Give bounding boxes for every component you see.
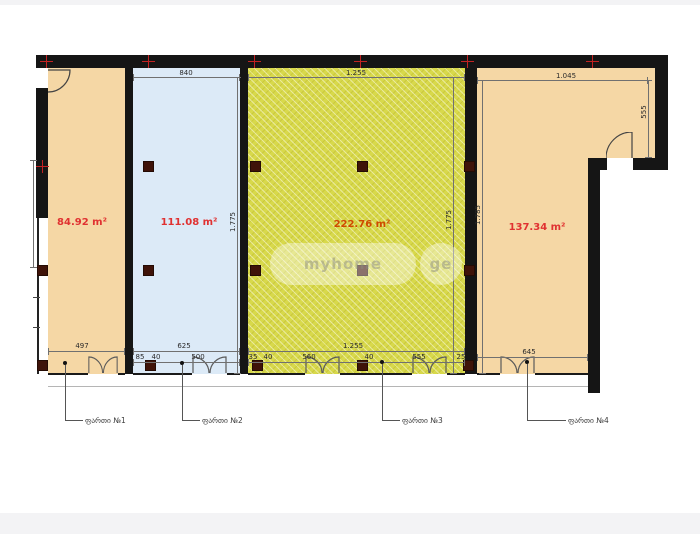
dim-line bbox=[477, 357, 588, 358]
unit2-name-label: ფართი №2 bbox=[202, 416, 243, 425]
dim-line bbox=[33, 160, 34, 268]
dim-line bbox=[133, 77, 240, 78]
dim-text: 645 bbox=[522, 348, 535, 356]
wall-top bbox=[36, 55, 668, 68]
wall-left-upper bbox=[36, 88, 48, 218]
unit4-name-label: ფართი №4 bbox=[568, 416, 609, 425]
dim-text: 85 bbox=[136, 353, 145, 361]
column bbox=[143, 265, 154, 276]
leader-line bbox=[382, 364, 383, 420]
dim-line bbox=[453, 77, 454, 374]
single-door-top-left bbox=[48, 68, 72, 94]
dim-line bbox=[248, 351, 465, 352]
dim-text: 1.775 bbox=[229, 212, 237, 232]
storefront-line bbox=[133, 373, 192, 375]
grid-marker-icon bbox=[36, 160, 49, 173]
column bbox=[250, 265, 261, 276]
storefront-line bbox=[535, 373, 588, 375]
dim-text: 500 bbox=[191, 353, 204, 361]
single-door-notch bbox=[606, 132, 633, 159]
dim-text: 40 bbox=[365, 353, 374, 361]
leader-line bbox=[182, 420, 200, 421]
threshold-line bbox=[48, 386, 588, 387]
grid-marker-icon bbox=[354, 55, 367, 68]
dim-line bbox=[248, 77, 465, 78]
storefront-line bbox=[48, 373, 88, 375]
dim-text: 40 bbox=[264, 353, 273, 361]
dim-line bbox=[133, 351, 240, 352]
wall-right-lower bbox=[588, 158, 600, 393]
floor-plan: 840 1.255 1.045 497 625 1.255 645 85 40 … bbox=[0, 0, 700, 534]
column bbox=[357, 161, 368, 172]
dim-line bbox=[48, 351, 125, 352]
unit1-area-label: 84.92 m² bbox=[57, 217, 107, 228]
dim-text: 1.045 bbox=[556, 72, 576, 80]
column bbox=[464, 265, 475, 276]
dim-text: 35 bbox=[249, 353, 258, 361]
dim-line bbox=[248, 362, 465, 363]
leader-line bbox=[527, 364, 528, 420]
storefront-line bbox=[340, 373, 412, 375]
dim-line bbox=[482, 80, 483, 374]
column bbox=[464, 161, 475, 172]
dim-line bbox=[477, 80, 648, 81]
grid-marker-icon bbox=[248, 55, 261, 68]
dim-text: 1.775 bbox=[445, 210, 453, 230]
storefront-line bbox=[118, 373, 125, 375]
wall-unit2-unit3 bbox=[240, 68, 248, 374]
watermark-tld: ge bbox=[430, 255, 453, 273]
column bbox=[250, 161, 261, 172]
dim-text: 25 bbox=[457, 353, 466, 361]
wall-right-upper bbox=[655, 55, 668, 170]
double-door-unit1 bbox=[88, 354, 118, 374]
screenshot-root: { "floorplan": { "units": [ {"area": "84… bbox=[0, 0, 700, 534]
leader-line bbox=[65, 420, 83, 421]
glazing-mullion bbox=[33, 297, 40, 298]
unit4-area-label: 137.34 m² bbox=[509, 222, 566, 233]
glazing-mullion bbox=[33, 327, 40, 328]
storefront-line bbox=[248, 373, 305, 375]
watermark-pill: myhome bbox=[270, 243, 416, 285]
leader-line bbox=[527, 420, 566, 421]
column bbox=[143, 161, 154, 172]
leader-line bbox=[382, 420, 400, 421]
column bbox=[37, 265, 48, 276]
dim-text: 560 bbox=[302, 353, 315, 361]
leader-line bbox=[182, 365, 183, 420]
dim-text: 840 bbox=[179, 69, 192, 77]
dim-text: 1.255 bbox=[346, 69, 366, 77]
column bbox=[37, 360, 48, 371]
unit2-area-label: 111.08 m² bbox=[161, 217, 218, 228]
dim-text: 555 bbox=[640, 105, 648, 118]
dim-text: 1.785 bbox=[474, 205, 482, 225]
dim-text: 497 bbox=[75, 342, 88, 350]
grid-marker-icon bbox=[142, 55, 155, 68]
notch-door-opening bbox=[607, 158, 633, 170]
unit1-name-label: ფართი №1 bbox=[85, 416, 126, 425]
dim-line bbox=[237, 77, 238, 374]
leader-line bbox=[65, 365, 66, 420]
dim-line bbox=[133, 362, 240, 363]
unit4-fill bbox=[477, 68, 588, 374]
wall-unit1-unit2 bbox=[125, 68, 133, 374]
grid-marker-icon bbox=[40, 55, 53, 68]
grid-marker-icon bbox=[586, 55, 599, 68]
dim-text: 1.255 bbox=[343, 342, 363, 350]
dim-line bbox=[648, 80, 649, 158]
unit3-area-label: 222.76 m² bbox=[334, 219, 391, 230]
dim-text: 40 bbox=[152, 353, 161, 361]
watermark-circle: ge bbox=[420, 243, 462, 285]
dim-text: 625 bbox=[177, 342, 190, 350]
grid-marker-icon bbox=[461, 55, 474, 68]
dim-text: 555 bbox=[412, 353, 425, 361]
unit3-name-label: ფართი №3 bbox=[402, 416, 443, 425]
watermark-brand: myhome bbox=[304, 255, 382, 273]
wall-left-glazing bbox=[37, 218, 39, 374]
